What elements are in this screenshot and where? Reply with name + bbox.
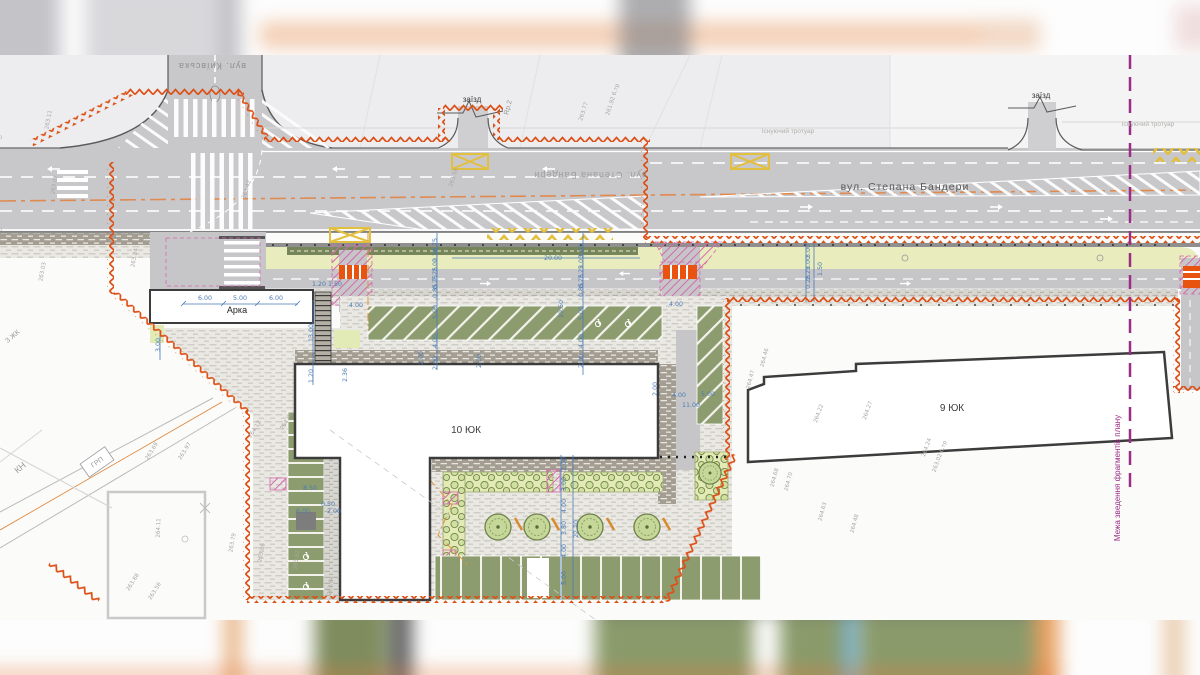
dimension-label: 1.20 1.50	[312, 281, 342, 288]
plan-viewport: ГРП КН 3 ЖК Rp.2	[0, 0, 1200, 675]
dimension-label: 6.00	[269, 295, 283, 302]
dimension-label: 4.00	[349, 302, 363, 309]
blur-blob	[220, 0, 240, 55]
dimension-label: 5.00	[233, 295, 247, 302]
dimension-label: 4.00	[432, 334, 439, 348]
blur-blob	[315, 620, 387, 675]
dimension-label: 2.00	[327, 508, 341, 515]
dimension-label: 5.00	[561, 571, 568, 585]
dimension-label: 6.00	[296, 508, 310, 515]
street-label-bandery-flipped: вул. Степана Бандери	[533, 170, 646, 180]
blur-blob	[780, 620, 842, 675]
dimension-label: 19.50	[558, 300, 565, 318]
dimension-label: 4.00	[578, 334, 585, 348]
dimension-label: 4.00	[561, 499, 568, 513]
dimension-label: 1.50	[817, 262, 824, 276]
blurred-top-band	[0, 0, 1200, 55]
entry-label-left: заїзд	[463, 95, 482, 104]
dimension-label: 0.85	[432, 284, 439, 298]
blur-blob	[1035, 620, 1059, 675]
dimension-label: 6.00	[198, 295, 212, 302]
yellow-zigzag-busstop	[487, 228, 613, 240]
dimension-label: 11.00	[682, 402, 700, 409]
entry-label-right: заїзд	[1032, 91, 1051, 100]
arch-label: Арка	[227, 305, 247, 315]
blur-blob	[842, 620, 858, 675]
dimension-label: 2.00	[561, 457, 568, 471]
dimension-label: 0.85	[578, 283, 585, 297]
dimension-label: 20.00	[544, 255, 562, 262]
blur-blob	[390, 620, 412, 675]
sidewalk-label-1: Існуючий тротуар	[762, 127, 815, 135]
dimension-label: 13.00	[308, 324, 315, 342]
site-plan: ГРП КН 3 ЖК Rp.2	[0, 0, 1200, 675]
yellow-zigzag-right	[1153, 148, 1200, 162]
street-label-kyivska: вул. Київська	[178, 61, 246, 71]
blur-blob	[1165, 620, 1183, 675]
dimension-label: 5.00	[578, 306, 585, 320]
dimension-label: 2.36	[342, 368, 349, 382]
dimension-label: 5.00	[432, 305, 439, 319]
dimension-label: 3.00	[805, 244, 812, 258]
blur-blob	[225, 620, 241, 675]
dimension-label: 5.00	[701, 391, 715, 398]
dimension-label: 4.00	[669, 301, 683, 308]
blur-blob	[1175, 5, 1200, 50]
dimension-label: 4.00	[561, 544, 568, 558]
dimension-label: 3.00	[155, 338, 162, 352]
fragment-boundary-note: Межа зведення фрагментів плану	[1113, 415, 1122, 541]
dimension-label: 1.20	[308, 369, 315, 383]
blur-blob	[0, 0, 60, 55]
building-9-label: 9 ЮК	[940, 403, 964, 414]
building-10-label: 10 ЮК	[451, 425, 481, 436]
dimension-label: 2.00	[652, 382, 659, 396]
dimension-label: 2.00	[476, 354, 483, 368]
survey-point-label: 264.11	[156, 518, 163, 537]
dimension-label: 2.00	[432, 356, 439, 370]
dimension-label: 3.00	[561, 477, 568, 491]
blur-blob	[595, 620, 753, 675]
dimension-label: 3.80	[561, 521, 568, 535]
street-label-bandery: вул. Степана Бандери	[841, 181, 970, 193]
blurred-bottom-band	[0, 620, 1200, 675]
dimension-label: 0.50	[321, 501, 335, 508]
blur-blob	[860, 620, 1035, 675]
dimension-label: 0.25	[805, 275, 812, 289]
dimension-label: 22.20	[573, 520, 580, 538]
blur-blob	[85, 0, 235, 55]
dimension-label: 4.00	[672, 392, 686, 399]
dimension-label: 2.00	[578, 354, 585, 368]
dimension-label: 8.50	[303, 485, 317, 492]
sidewalk-label-2: Існуючий тротуар	[1122, 120, 1175, 128]
blur-blob	[980, 20, 1040, 50]
blur-blob	[0, 670, 1060, 675]
blur-blob	[620, 0, 690, 55]
dimension-label: 2.00	[418, 351, 425, 365]
